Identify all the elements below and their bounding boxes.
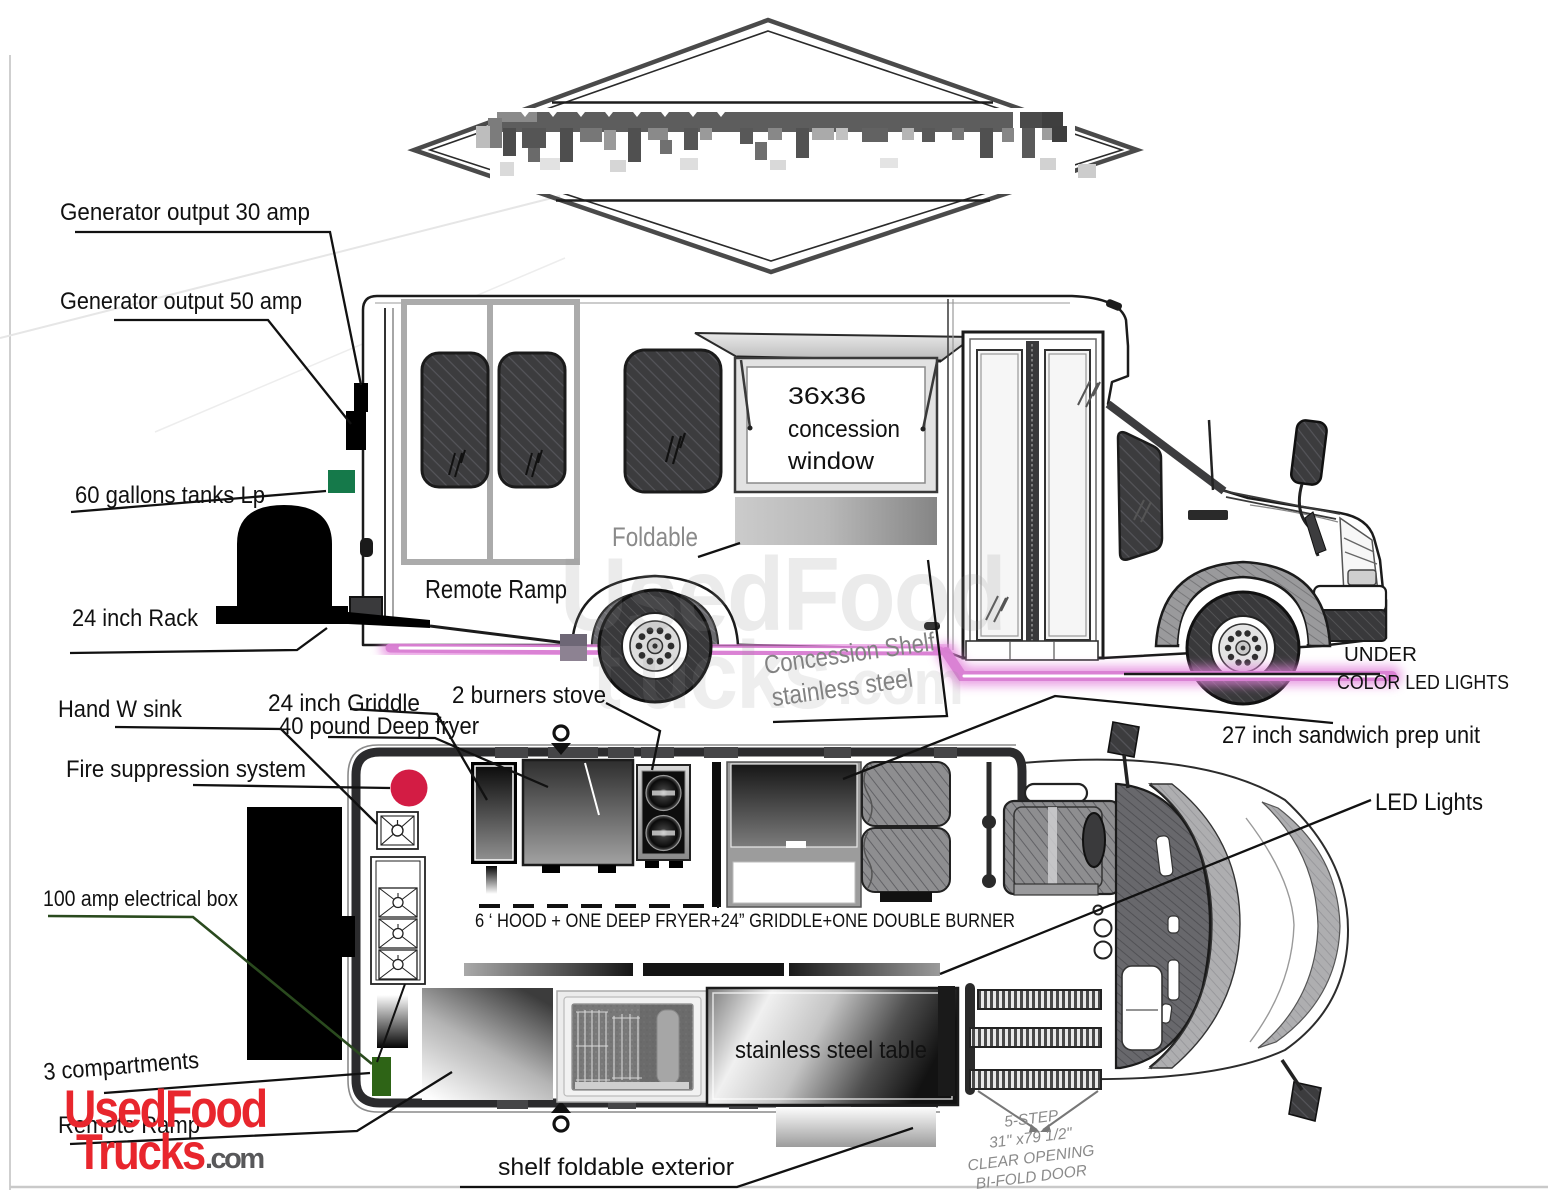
svg-text:LED Lights: LED Lights — [1375, 789, 1483, 816]
svg-text:Remote Ramp: Remote Ramp — [425, 574, 567, 604]
svg-text:Generator output 50 amp: Generator output 50 amp — [60, 288, 302, 315]
svg-text:UNDER: UNDER — [1344, 643, 1417, 666]
svg-text:100 amp electrical box: 100 amp electrical box — [43, 886, 238, 911]
svg-text:40 pound Deep fryer: 40 pound Deep fryer — [279, 713, 479, 740]
svg-text:COLOR LED LIGHTS: COLOR LED LIGHTS — [1337, 671, 1509, 694]
svg-text:shelf foldable exterior: shelf foldable exterior — [498, 1154, 734, 1181]
svg-text:window: window — [787, 448, 875, 475]
svg-text:6 ‘ HOOD + ONE DEEP FRYER+24”: 6 ‘ HOOD + ONE DEEP FRYER+24” GRIDDLE+ON… — [475, 911, 1015, 932]
svg-text:Hand W sink: Hand W sink — [58, 696, 183, 723]
svg-text:Generator output 30 amp: Generator output 30 amp — [60, 199, 310, 226]
svg-text:concession: concession — [788, 416, 900, 443]
svg-text:27 inch sandwich prep unit: 27 inch sandwich prep unit — [1222, 722, 1480, 749]
svg-text:Fire suppression system: Fire suppression system — [66, 756, 306, 783]
svg-text:stainless steel table: stainless steel table — [735, 1037, 927, 1064]
svg-text:36x36: 36x36 — [788, 383, 866, 410]
svg-text:2 burners stove: 2 burners stove — [452, 682, 606, 709]
svg-text:Foldable: Foldable — [612, 522, 698, 552]
svg-text:24 inch Rack: 24 inch Rack — [72, 605, 199, 632]
